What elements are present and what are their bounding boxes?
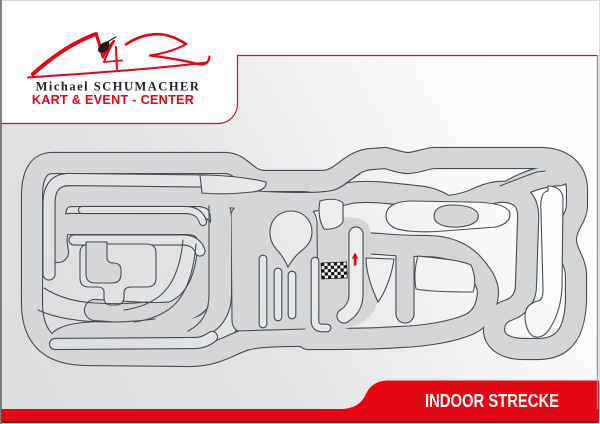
svg-text:KART & EVENT - CENTER: KART & EVENT - CENTER [32,93,194,107]
svg-text:Michael SCHUMACHER: Michael SCHUMACHER [36,80,201,94]
svg-text:INDOOR STRECKE: INDOOR STRECKE [425,390,559,411]
